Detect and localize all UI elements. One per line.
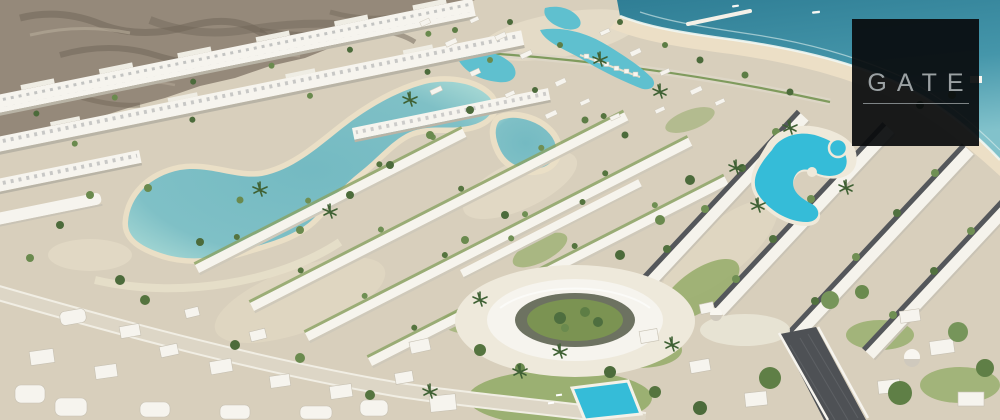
ring-building bbox=[455, 265, 695, 377]
aerial-resort-render: GATE bbox=[0, 0, 1000, 420]
gate-logo-text: GATE bbox=[857, 71, 973, 96]
ring-courtyard bbox=[527, 299, 623, 341]
gate-logo-watermark: GATE bbox=[852, 19, 979, 146]
gate-logo-underline bbox=[863, 103, 969, 104]
scene bbox=[0, 0, 1000, 420]
